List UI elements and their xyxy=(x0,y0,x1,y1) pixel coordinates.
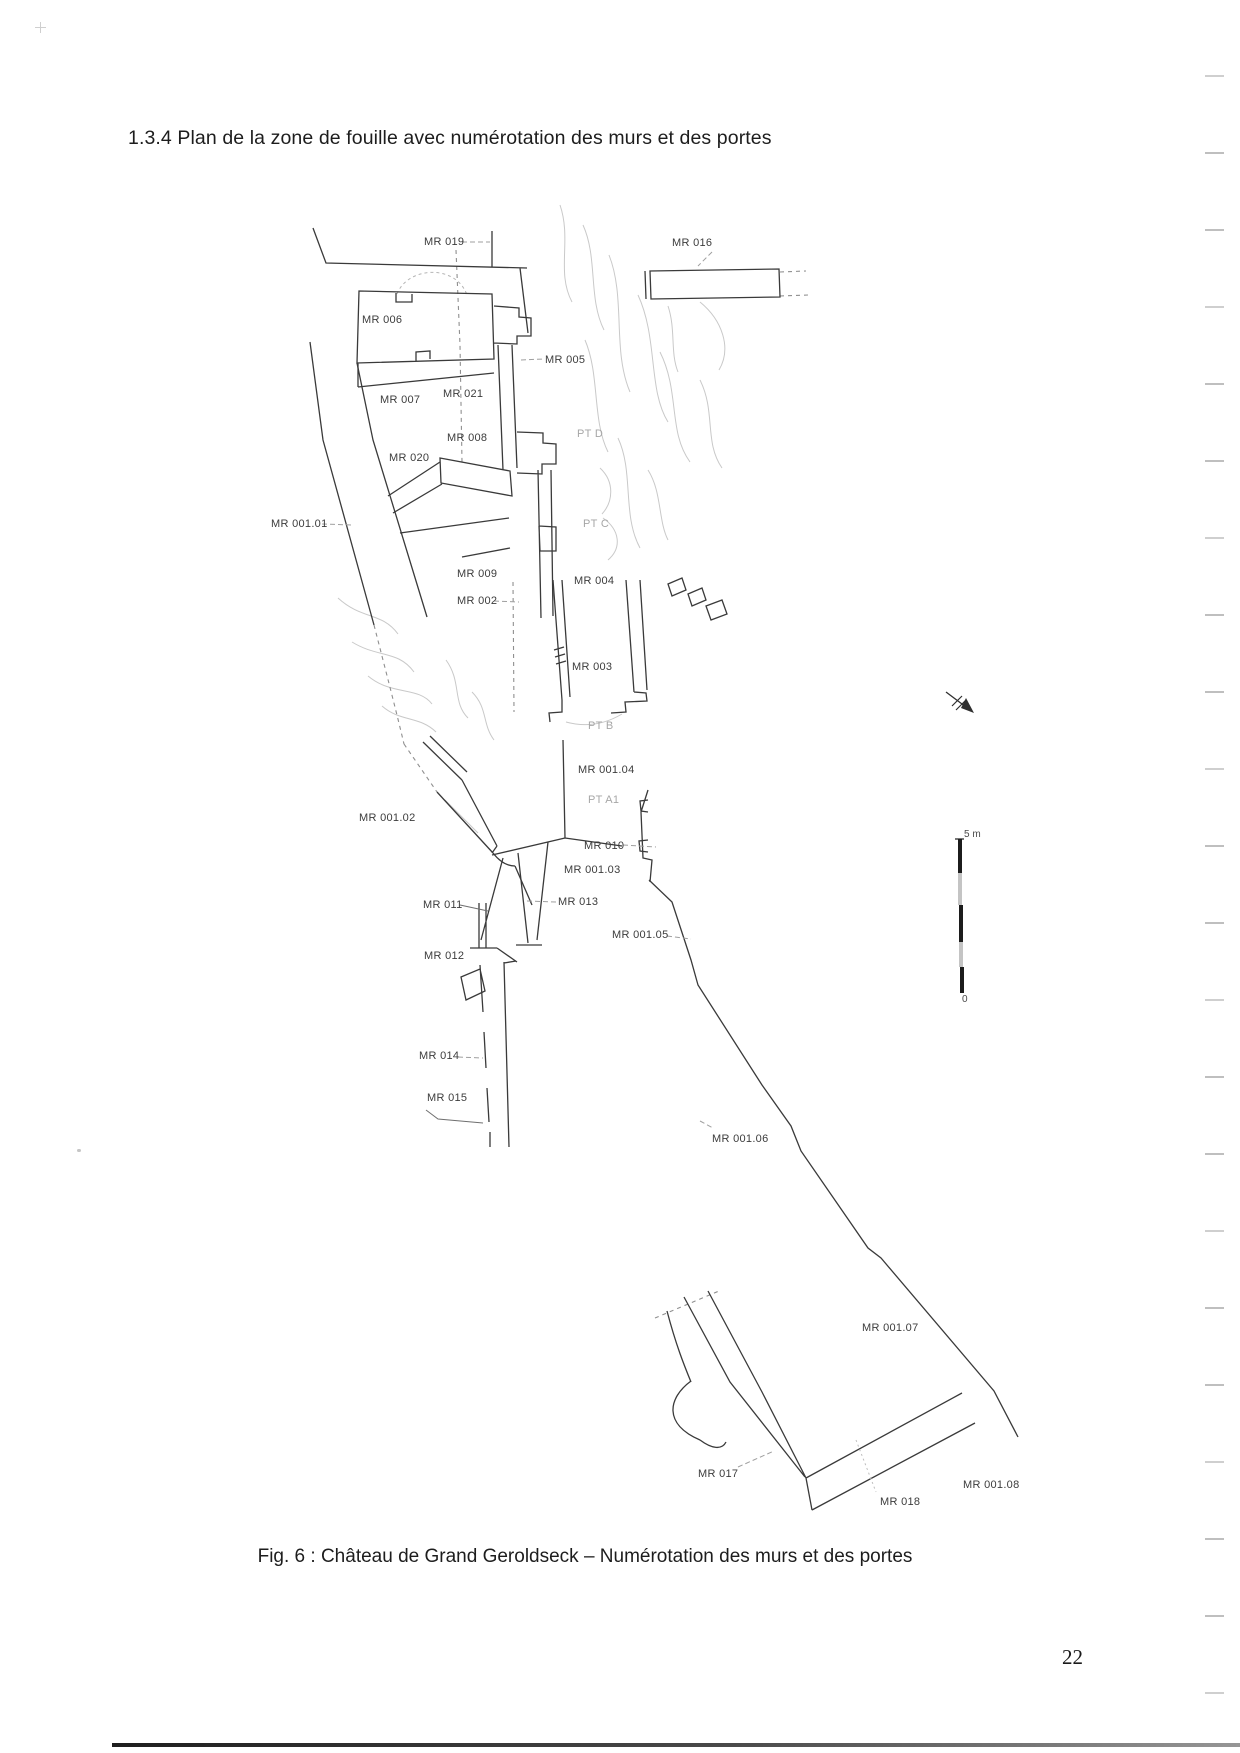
wall-lines xyxy=(310,228,1018,1510)
label-mr-020: MR 020 xyxy=(389,452,429,464)
west-enceinte-wall xyxy=(310,342,532,905)
scan-edge-dash xyxy=(1205,845,1224,847)
keep-mr006-walls xyxy=(357,291,531,557)
label-mr-019: MR 019 xyxy=(424,236,464,248)
scale-bar-top-label: 5 m xyxy=(964,829,981,840)
label-pt-a1: PT A1 xyxy=(588,794,619,806)
label-mr-001-02: MR 001.02 xyxy=(359,812,416,824)
label-mr-010: MR 010 xyxy=(584,840,624,852)
gate-passage-walls xyxy=(549,580,647,722)
plan-linework xyxy=(0,0,1240,1753)
east-courtyard-wall xyxy=(498,345,556,618)
label-pt-d: PT D xyxy=(577,428,603,440)
label-mr-001-03: MR 001.03 xyxy=(564,864,621,876)
scan-edge-dash xyxy=(1205,1384,1224,1386)
scan-edge-dash xyxy=(1205,383,1224,385)
label-mr-004: MR 004 xyxy=(574,575,614,587)
scan-stray-dot xyxy=(77,1149,81,1152)
north-boundary-wall xyxy=(313,228,528,333)
label-mr-003: MR 003 xyxy=(572,661,612,673)
scan-edge-dash xyxy=(1205,1615,1224,1617)
scan-edge-dash xyxy=(1205,1692,1224,1694)
stepped-structures xyxy=(668,578,727,620)
scan-bottom-strip xyxy=(112,1743,1240,1747)
scan-edge-dash xyxy=(1205,1076,1224,1078)
label-mr-012: MR 012 xyxy=(424,950,464,962)
mr014-wall-band xyxy=(461,961,516,1147)
label-leader-lines xyxy=(322,242,774,1467)
scan-edge-dash xyxy=(1205,1307,1224,1309)
label-mr-014: MR 014 xyxy=(419,1050,459,1062)
scan-edge-dash xyxy=(1205,691,1224,693)
scan-edge-dash xyxy=(1205,460,1224,462)
label-mr-001-04: MR 001.04 xyxy=(578,764,635,776)
label-pt-b: PT B xyxy=(588,720,613,732)
label-pt-c: PT C xyxy=(583,518,609,530)
label-mr-001-06: MR 001.06 xyxy=(712,1133,769,1145)
label-mr-021: MR 021 xyxy=(443,388,483,400)
label-mr-016: MR 016 xyxy=(672,237,712,249)
scan-edge-dash xyxy=(1205,999,1224,1001)
scan-corner-mark xyxy=(40,22,41,33)
label-mr-008: MR 008 xyxy=(447,432,487,444)
scan-edge-dash xyxy=(1205,229,1224,231)
scan-edge-dash xyxy=(1205,537,1224,539)
label-mr-017: MR 017 xyxy=(698,1468,738,1480)
dashed-section-lines xyxy=(374,250,808,1318)
mr016-wall-block xyxy=(645,269,780,299)
label-mr-005: MR 005 xyxy=(545,354,585,366)
scan-edge-dash xyxy=(1205,306,1224,308)
label-mr-009: MR 009 xyxy=(457,568,497,580)
scan-edge-dash xyxy=(1205,1153,1224,1155)
scan-edge-dash xyxy=(1205,614,1224,616)
scan-edge-dash xyxy=(1205,75,1224,77)
scan-edge-dash xyxy=(1205,1461,1224,1463)
scan-edge-dash xyxy=(1205,1538,1224,1540)
label-mr-006: MR 006 xyxy=(362,314,402,326)
scan-edge-dash xyxy=(1205,768,1224,770)
label-mr-015: MR 015 xyxy=(427,1092,467,1104)
north-arrow xyxy=(946,692,974,713)
label-mr-001-01: MR 001.01 xyxy=(271,518,328,530)
figure-caption: Fig. 6 : Château de Grand Geroldseck – N… xyxy=(185,1546,985,1568)
label-mr-002: MR 002 xyxy=(457,595,497,607)
label-mr-001-07: MR 001.07 xyxy=(862,1322,919,1334)
scale-bar xyxy=(955,839,964,993)
page-number: 22 xyxy=(1062,1645,1083,1670)
scan-edge-dash xyxy=(1205,152,1224,154)
scan-edge-dash xyxy=(1205,922,1224,924)
label-mr-001-08: MR 001.08 xyxy=(963,1479,1020,1491)
scan-edge-dash xyxy=(1205,1230,1224,1232)
label-mr-001-05: MR 001.05 xyxy=(612,929,669,941)
label-mr-011: MR 011 xyxy=(423,899,463,911)
label-mr-007: MR 007 xyxy=(380,394,420,406)
scale-bar-zero-label: 0 xyxy=(962,994,968,1005)
label-mr-018: MR 018 xyxy=(880,1496,920,1508)
label-mr-013: MR 013 xyxy=(558,896,598,908)
document-page: 1.3.4 Plan de la zone de fouille avec nu… xyxy=(0,0,1240,1753)
